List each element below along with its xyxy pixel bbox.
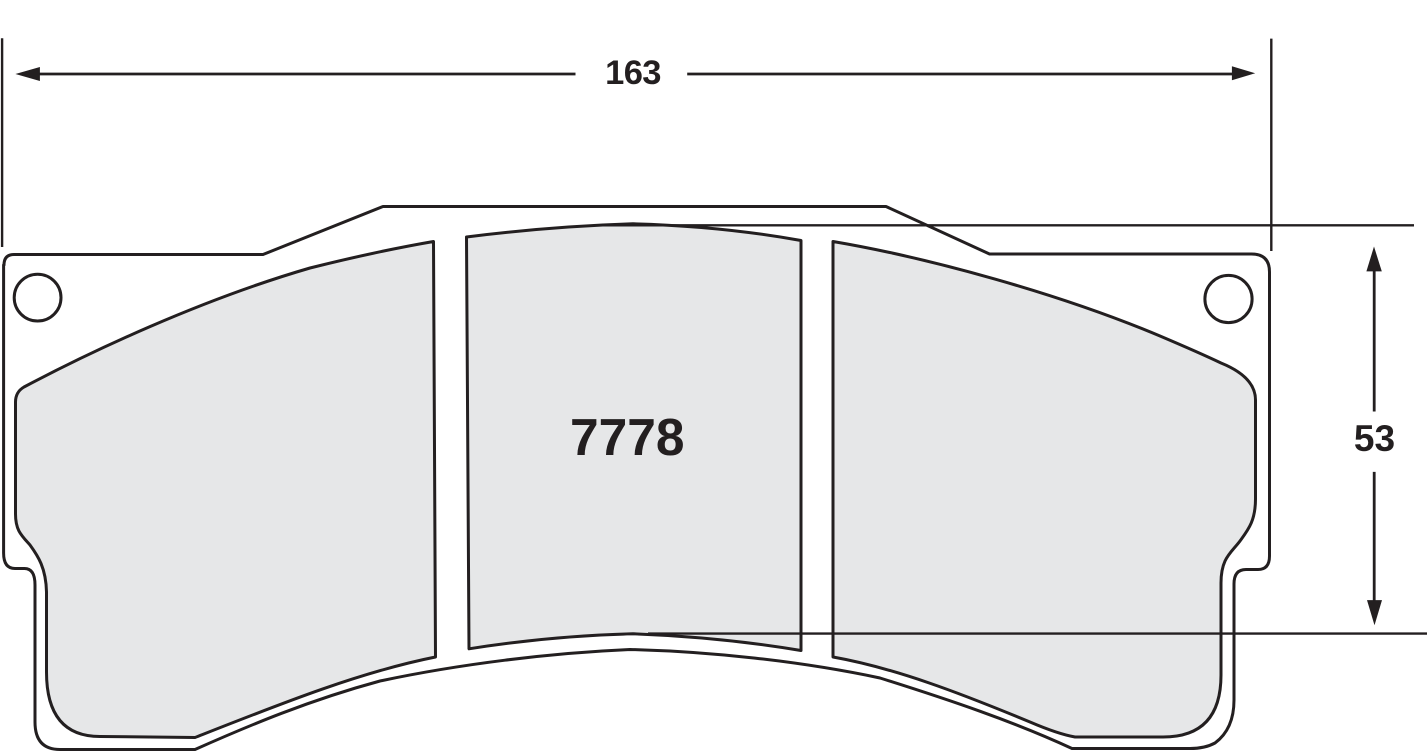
svg-text:163: 163: [605, 54, 661, 92]
svg-text:53: 53: [1354, 418, 1395, 459]
svg-text:7778: 7778: [570, 408, 685, 466]
